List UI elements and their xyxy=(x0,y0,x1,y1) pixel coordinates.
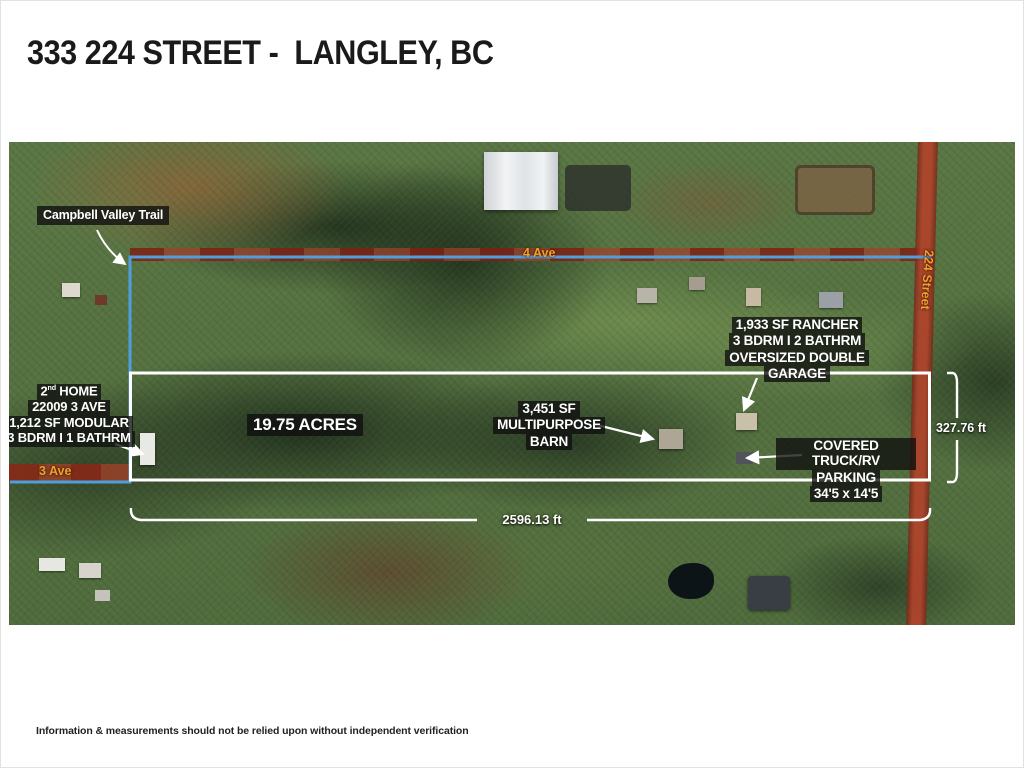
trail-callout: Campbell Valley Trail xyxy=(37,206,169,225)
disclaimer-text: Information & measurements should not be… xyxy=(36,725,469,737)
street-label-4-ave: 4 Ave xyxy=(523,246,555,260)
rancher-line-4: GARAGE xyxy=(764,366,830,382)
frontage-measurement: 2596.13 ft xyxy=(480,512,584,527)
barn-line-1: 3,451 SF xyxy=(518,401,579,417)
listing-page: { "page": { "title": "333 224 STREET - L… xyxy=(0,0,1024,768)
rancher-line-2: 3 BDRM I 2 BATHRM xyxy=(729,333,865,349)
depth-bracket-top xyxy=(947,373,957,418)
parking-line-2: PARKING xyxy=(812,470,880,486)
second-home-line-3: 1,212 SF MODULAR xyxy=(9,416,133,432)
trail-pointer-line xyxy=(97,230,125,264)
depth-bracket-bottom xyxy=(947,440,957,482)
street-label-3-ave: 3 Ave xyxy=(39,464,71,478)
frontage-bracket-right xyxy=(587,508,930,520)
rancher-callout: 1,933 SF RANCHER 3 BDRM I 2 BATHRM OVERS… xyxy=(717,317,877,382)
second-home-line-1: 2nd HOME xyxy=(37,384,102,400)
depth-measurement: 327.76 ft xyxy=(932,421,990,435)
parking-line-3: 34'5 x 14'5 xyxy=(810,486,882,502)
acreage-label: 19.75 ACRES xyxy=(247,414,363,436)
second-home-line-4: 3 BDRM I 1 BATHRM xyxy=(9,431,135,447)
rancher-arrow xyxy=(744,378,757,410)
barn-callout: 3,451 SF MULTIPURPOSE BARN xyxy=(484,401,614,450)
frontage-bracket-left xyxy=(131,508,477,520)
acreage-text: 19.75 ACRES xyxy=(247,414,363,436)
page-title: 333 224 STREET - LANGLEY, BC xyxy=(27,34,493,73)
barn-line-2: MULTIPURPOSE xyxy=(493,417,605,433)
rancher-line-1: 1,933 SF RANCHER xyxy=(732,317,863,333)
parking-callout: COVERED TRUCK/RV PARKING 34'5 x 14'5 xyxy=(776,438,916,502)
rancher-line-3: OVERSIZED DOUBLE xyxy=(725,350,869,366)
barn-line-3: BARN xyxy=(526,434,572,450)
parking-line-1: COVERED TRUCK/RV xyxy=(776,438,916,470)
trail-callout-text: Campbell Valley Trail xyxy=(37,206,169,225)
second-home-line-2: 22009 3 AVE xyxy=(28,400,110,416)
second-home-callout: 2nd HOME 22009 3 AVE 1,212 SF MODULAR 3 … xyxy=(9,384,139,447)
aerial-map-image: 4 Ave 224 Street 3 Ave Campbell Valley T… xyxy=(9,142,1015,625)
